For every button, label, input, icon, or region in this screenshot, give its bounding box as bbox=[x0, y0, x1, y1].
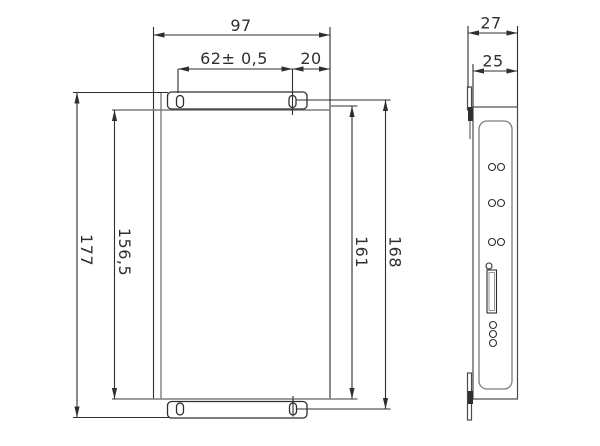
dim-label-156-5: 156,5 bbox=[115, 228, 134, 276]
mounting-slot-bottom-left bbox=[177, 403, 184, 415]
drawing-canvas: 97 62± 0,5 20 177 156,5 bbox=[0, 0, 600, 446]
top-tab-hook bbox=[468, 107, 473, 121]
front-body-outline bbox=[73, 27, 358, 418]
dim-slot-to-edge: 20 bbox=[293, 49, 331, 72]
side-body-outline bbox=[473, 107, 518, 399]
dim-overall-width: 97 bbox=[154, 16, 331, 38]
dim-label-168: 168 bbox=[386, 236, 405, 268]
dim-label-177: 177 bbox=[77, 234, 96, 266]
dim-label-97: 97 bbox=[230, 16, 251, 35]
dim-slot-spacing-height: 168 bbox=[383, 100, 405, 409]
dim-label-62: 62± 0,5 bbox=[200, 49, 268, 68]
dim-label-25: 25 bbox=[482, 52, 503, 71]
dim-overall-depth: 27 bbox=[468, 14, 518, 36]
dim-body-height: 156,5 bbox=[112, 110, 134, 399]
dim-slot-spacing-width: 62± 0,5 bbox=[178, 49, 293, 72]
dim-overall-height: 177 bbox=[74, 93, 96, 418]
side-view: 27 25 bbox=[468, 14, 518, 421]
dim-body-depth: 25 bbox=[473, 52, 518, 74]
dim-label-27: 27 bbox=[480, 14, 501, 33]
dimension-drawing: 97 62± 0,5 20 177 156,5 bbox=[0, 0, 600, 446]
front-view: 97 62± 0,5 20 177 156,5 bbox=[73, 16, 405, 418]
mounting-slot-top-left bbox=[177, 96, 184, 108]
top-flange bbox=[168, 92, 308, 109]
dim-slot-to-base-height: 161 bbox=[349, 106, 371, 399]
dim-label-20: 20 bbox=[300, 49, 321, 68]
bottom-flange bbox=[168, 402, 308, 419]
bottom-tab-hook bbox=[468, 391, 473, 404]
dim-label-161: 161 bbox=[352, 236, 371, 268]
